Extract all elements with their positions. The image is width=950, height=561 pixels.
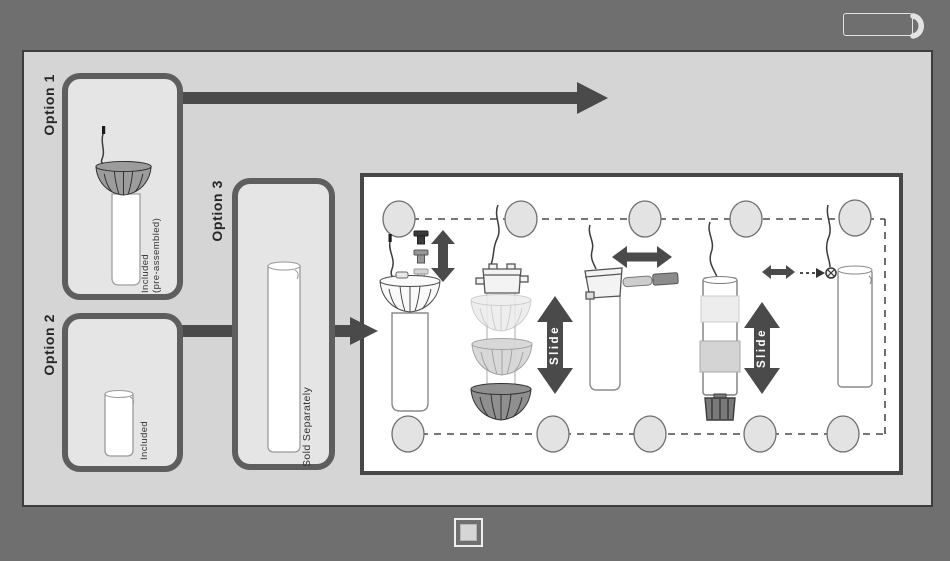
up-down-arrow xyxy=(431,230,455,282)
assembly-diagram: Slide xyxy=(364,177,899,471)
light-bulb xyxy=(537,416,569,452)
left-right-arrow xyxy=(612,246,672,268)
small-left-right-arrow xyxy=(762,265,795,279)
step-4-slide-stake: Slide xyxy=(700,222,780,420)
plug-medium xyxy=(414,250,428,263)
wire xyxy=(390,242,394,278)
option-1-illustration xyxy=(62,73,183,300)
light-bulbs xyxy=(383,200,871,452)
collar-ghost-1 xyxy=(471,295,531,332)
step-1-insert-plug xyxy=(380,230,455,411)
light-bulb xyxy=(383,201,415,237)
light-bulb xyxy=(744,416,776,452)
assembly-panel: Slide xyxy=(360,173,903,475)
handset-icon xyxy=(906,9,940,43)
note-line: (pre-assembled) xyxy=(151,196,162,293)
light-bulb xyxy=(629,201,661,237)
slide-label: Slide xyxy=(756,328,768,368)
plug-dark xyxy=(414,231,428,244)
handset-curve xyxy=(913,16,921,36)
light-bulb xyxy=(730,201,762,237)
light-bulb xyxy=(634,416,666,452)
connector-arrowhead xyxy=(816,268,825,278)
option-1-note: Included (pre-assembled) xyxy=(140,196,162,293)
wire xyxy=(101,134,107,164)
collar-solid xyxy=(471,384,531,421)
light-bulb xyxy=(827,416,859,452)
page-indicator-square xyxy=(460,524,477,541)
option-2-note: Included xyxy=(139,408,150,460)
lamp-tube xyxy=(268,266,300,452)
option-1-label: Option 1 xyxy=(41,74,58,136)
slide-label: Slide xyxy=(549,325,561,365)
wire xyxy=(490,205,499,267)
page-background: Slide xyxy=(0,0,950,561)
lamp-tube xyxy=(392,313,428,411)
option-2-illustration xyxy=(62,313,183,472)
light-bulb xyxy=(505,201,537,237)
light-string-cable xyxy=(399,219,885,434)
page-indicator[interactable] xyxy=(454,518,483,547)
lamp-cap xyxy=(476,264,528,293)
option-3-note: Sold Separately xyxy=(301,380,313,467)
rim-clip xyxy=(396,272,408,278)
lamp-tube xyxy=(105,394,133,456)
collar-ghost-2 xyxy=(472,339,532,376)
collar-band-light xyxy=(701,296,739,322)
note-line: Included xyxy=(140,196,151,293)
model-number-box xyxy=(843,13,913,36)
wire-connector xyxy=(826,268,836,278)
wire xyxy=(709,222,717,277)
lamp-cap xyxy=(585,268,622,299)
wire xyxy=(589,225,596,269)
lamp-tube xyxy=(112,194,140,285)
stake-base xyxy=(705,394,735,420)
option-3-label: Option 3 xyxy=(209,180,226,242)
option-3-illustration xyxy=(232,178,335,470)
lamp-collar-white xyxy=(380,276,440,313)
lamp-collar-gray xyxy=(96,161,151,195)
light-bulb xyxy=(839,200,871,236)
light-bulb xyxy=(392,416,424,452)
wire xyxy=(827,205,830,267)
lamp-tube xyxy=(838,269,872,387)
option-2-label: Option 2 xyxy=(41,314,58,376)
pin xyxy=(623,273,679,288)
step-3-insert-pin xyxy=(585,225,678,390)
collar-band-gray xyxy=(700,341,740,372)
lamp-tube xyxy=(590,296,620,390)
